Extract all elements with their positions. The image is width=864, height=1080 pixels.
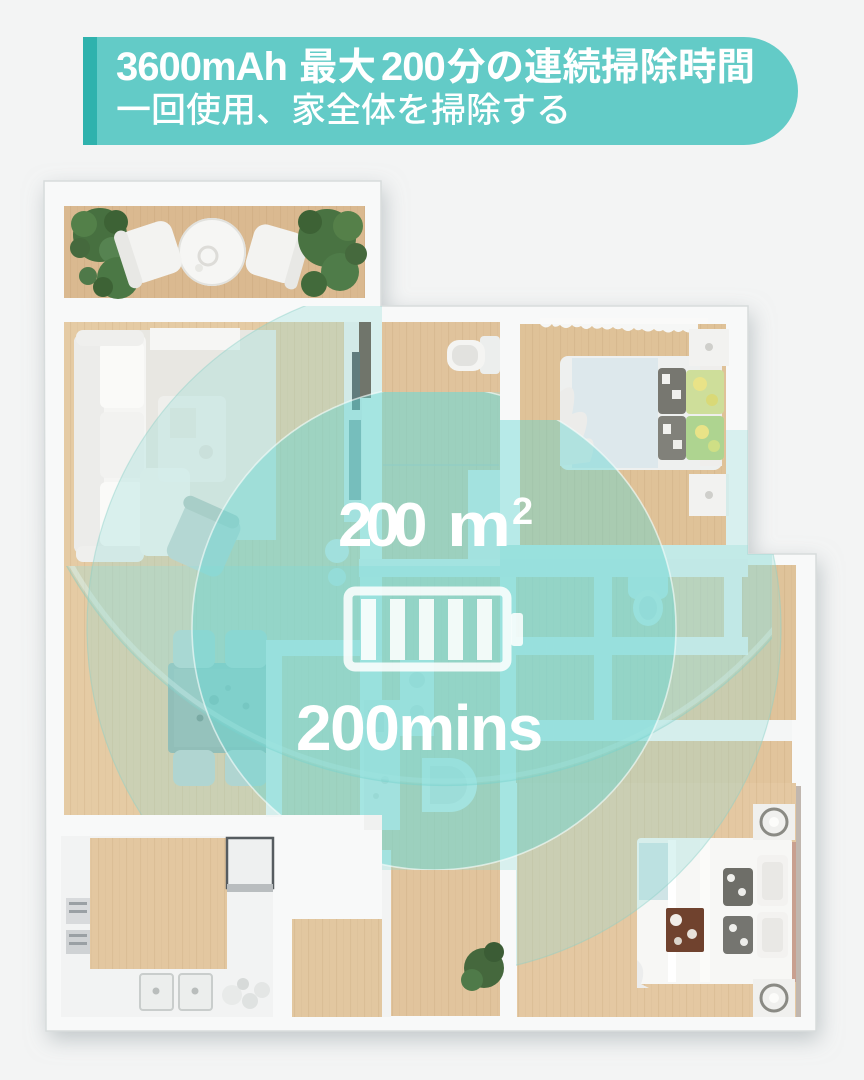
svg-text:200mins: 200mins	[296, 692, 542, 764]
svg-text:2: 2	[512, 491, 533, 533]
svg-text:200: 200	[381, 45, 445, 89]
svg-text:200: 200	[338, 491, 425, 560]
svg-text:3600mAh: 3600mAh	[116, 45, 287, 89]
svg-text:m: m	[447, 491, 511, 560]
